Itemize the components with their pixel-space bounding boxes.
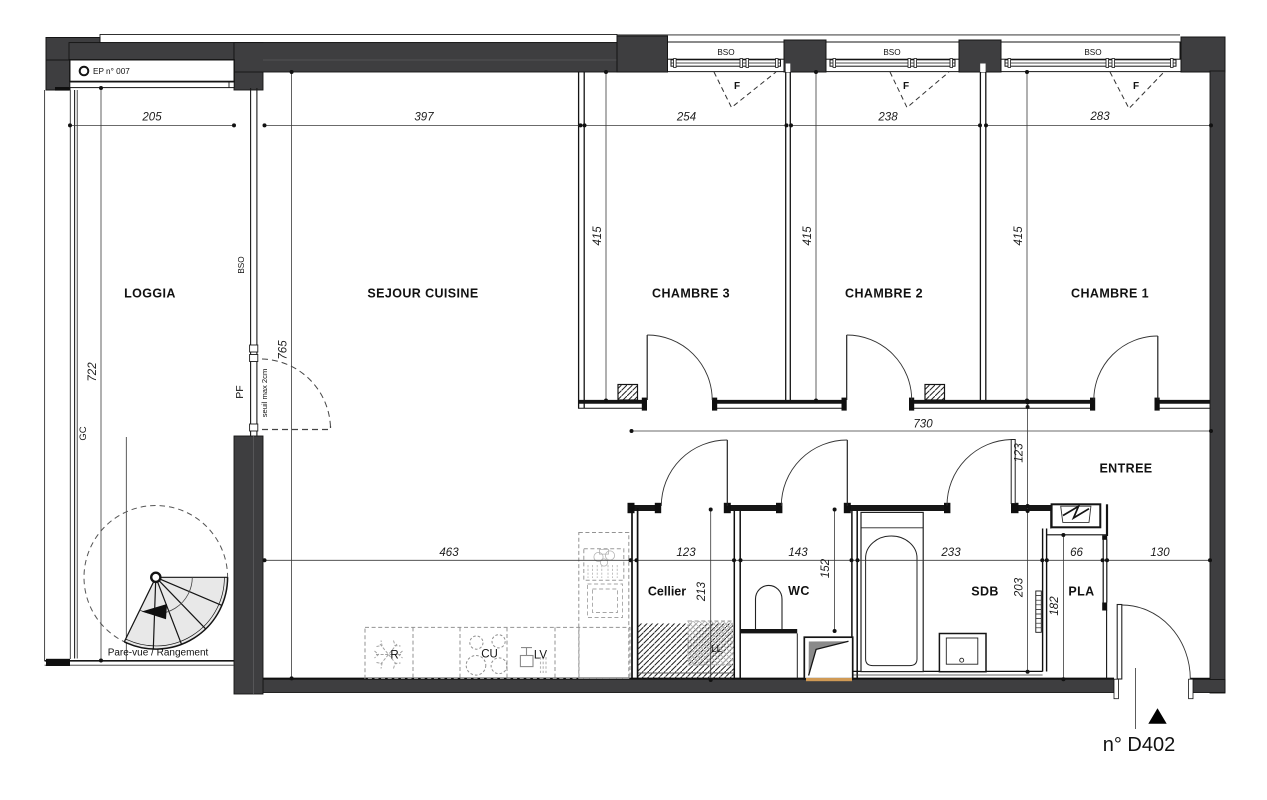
svg-text:123: 123	[676, 547, 696, 559]
svg-text:CHAMBRE 2: CHAMBRE 2	[845, 287, 923, 301]
svg-text:LL: LL	[711, 644, 723, 655]
svg-text:PF: PF	[234, 385, 246, 398]
svg-text:415: 415	[1013, 226, 1025, 246]
svg-text:LOGGIA: LOGGIA	[124, 287, 176, 301]
svg-text:205: 205	[141, 112, 162, 124]
svg-text:F: F	[903, 81, 909, 92]
svg-text:F: F	[734, 81, 740, 92]
svg-text:463: 463	[439, 547, 459, 559]
svg-text:415: 415	[592, 226, 604, 246]
svg-text:213: 213	[696, 581, 708, 602]
svg-text:233: 233	[940, 547, 961, 559]
svg-text:722: 722	[87, 362, 99, 382]
svg-text:BSO: BSO	[1084, 48, 1101, 57]
svg-text:283: 283	[1089, 111, 1110, 123]
svg-text:130: 130	[1150, 547, 1170, 559]
svg-text:BSO: BSO	[883, 48, 900, 57]
svg-text:Pare-vue / Rangement: Pare-vue / Rangement	[108, 648, 209, 659]
svg-text:EP n° 007: EP n° 007	[93, 67, 130, 76]
svg-text:PLA: PLA	[1068, 585, 1094, 599]
svg-text:66: 66	[1070, 547, 1083, 559]
svg-text:765: 765	[278, 340, 290, 360]
svg-text:203: 203	[1013, 577, 1025, 598]
svg-text:WC: WC	[788, 584, 810, 598]
svg-text:CHAMBRE 1: CHAMBRE 1	[1071, 287, 1149, 301]
svg-text:GC: GC	[78, 426, 89, 440]
svg-text:BSO: BSO	[717, 48, 734, 57]
svg-text:SDB: SDB	[971, 585, 999, 599]
svg-text:730: 730	[913, 419, 933, 431]
svg-text:F: F	[1133, 81, 1139, 92]
svg-text:415: 415	[802, 226, 814, 246]
svg-text:BSO: BSO	[237, 256, 246, 273]
svg-text:seuil max 2cm: seuil max 2cm	[260, 369, 269, 418]
svg-text:152: 152	[820, 558, 832, 578]
svg-text:CU: CU	[481, 649, 498, 661]
svg-text:182: 182	[1049, 596, 1061, 616]
svg-text:ENTREE: ENTREE	[1099, 462, 1152, 476]
svg-text:123: 123	[1013, 443, 1025, 463]
svg-text:397: 397	[414, 112, 434, 124]
svg-text:143: 143	[788, 547, 808, 559]
svg-text:CHAMBRE 3: CHAMBRE 3	[652, 287, 730, 301]
svg-text:LV: LV	[534, 650, 548, 662]
svg-text:Cellier: Cellier	[648, 585, 686, 599]
svg-text:n° D402: n° D402	[1103, 734, 1176, 756]
svg-text:R: R	[390, 650, 398, 662]
svg-text:SEJOUR CUISINE: SEJOUR CUISINE	[367, 287, 478, 301]
svg-text:254: 254	[676, 112, 696, 124]
svg-text:238: 238	[877, 112, 898, 124]
